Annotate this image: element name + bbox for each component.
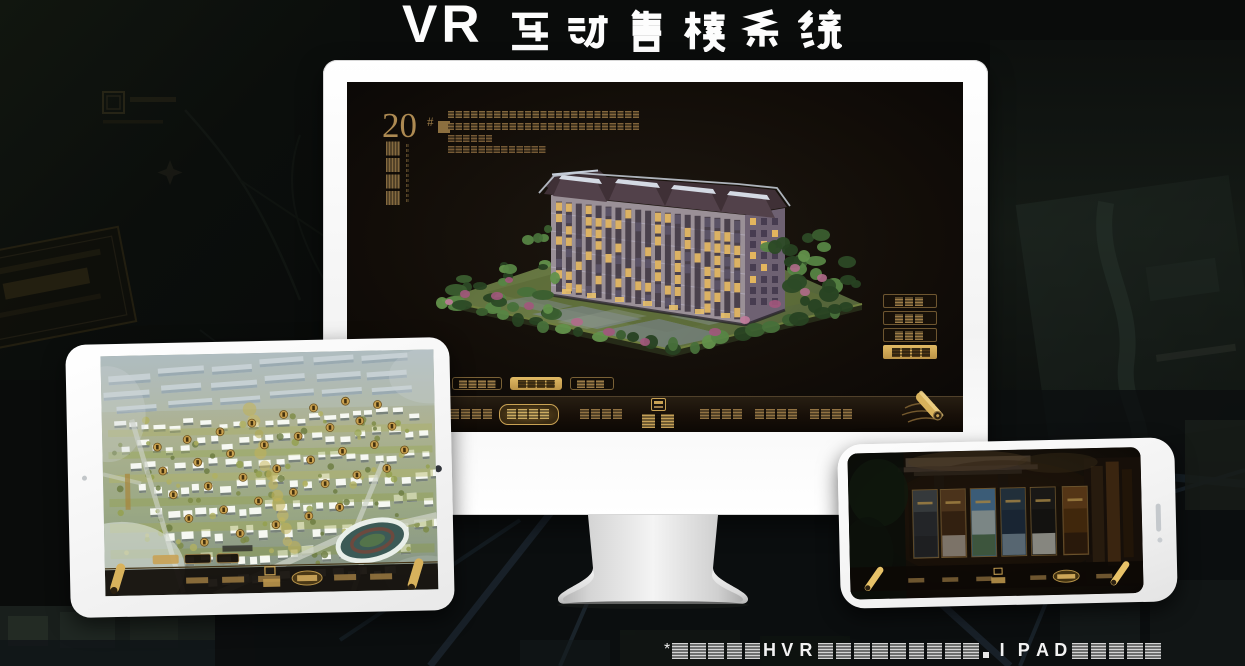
svg-text:#: #: [427, 114, 434, 129]
svg-text:20: 20: [382, 106, 417, 145]
